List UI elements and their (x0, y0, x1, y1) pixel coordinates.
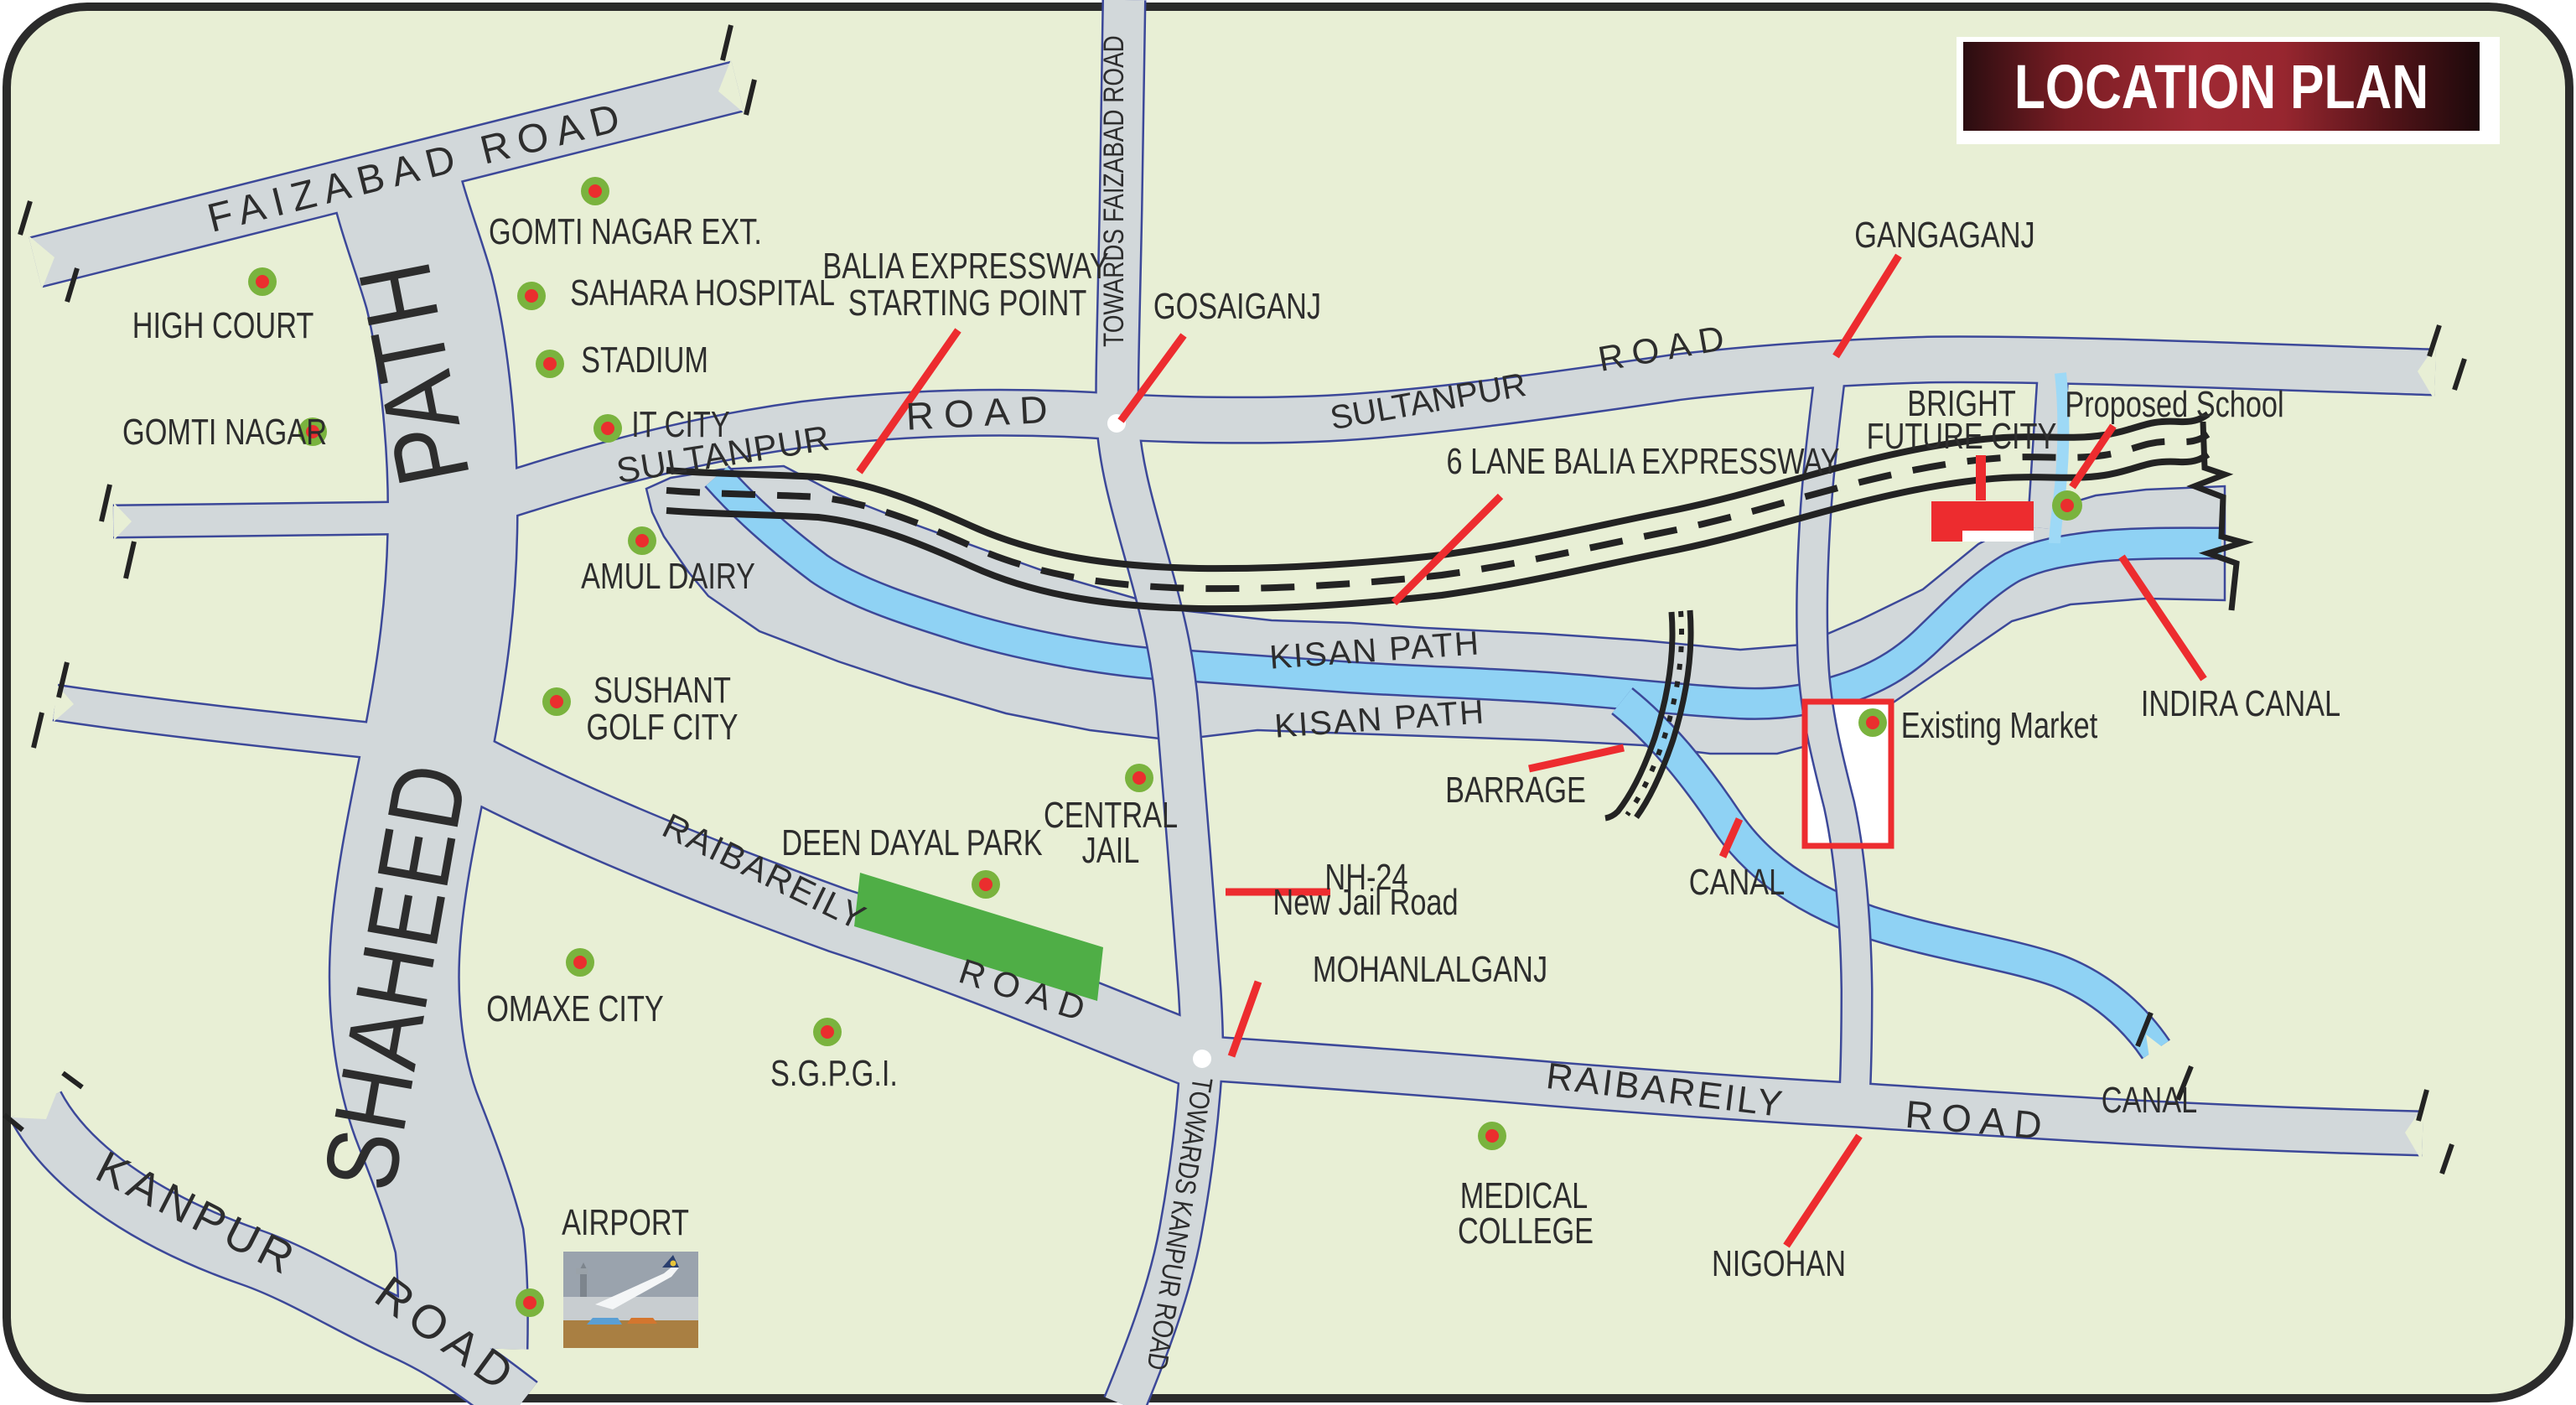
svg-text:CANAL: CANAL (2102, 1080, 2197, 1121)
svg-text:AMUL DAIRY: AMUL DAIRY (581, 556, 755, 597)
svg-text:SAHARA HOSPITAL: SAHARA HOSPITAL (570, 272, 835, 314)
svg-text:Proposed School: Proposed School (2065, 384, 2283, 425)
svg-text:FUTURE CITY: FUTURE CITY (1867, 416, 2057, 457)
svg-text:CANAL: CANAL (1689, 862, 1785, 903)
svg-text:NIGOHAN: NIGOHAN (1712, 1243, 1846, 1284)
svg-text:New Jail Road: New Jail Road (1272, 882, 1458, 923)
svg-text:Existing Market: Existing Market (1901, 705, 2098, 746)
svg-text:JAIL: JAIL (1082, 830, 1140, 871)
svg-text:LOCATION PLAN: LOCATION PLAN (2014, 53, 2428, 122)
svg-text:OMAXE CITY: OMAXE CITY (486, 988, 664, 1029)
svg-text:HIGH COURT: HIGH COURT (132, 305, 314, 346)
svg-text:TOWARDS FAIZABAD ROAD: TOWARDS FAIZABAD ROAD (1097, 35, 1129, 347)
svg-text:GOLF CITY: GOLF CITY (586, 707, 738, 748)
svg-text:STADIUM: STADIUM (581, 340, 708, 381)
svg-text:GANGAGANJ: GANGAGANJ (1854, 215, 2034, 256)
svg-text:GOSAIGANJ: GOSAIGANJ (1153, 286, 1321, 327)
svg-text:6 LANE BALIA EXPRESSWAY: 6 LANE BALIA EXPRESSWAY (1447, 441, 1840, 482)
svg-text:MOHANLALGANJ: MOHANLALGANJ (1313, 949, 1547, 990)
svg-text:S.G.P.G.I.: S.G.P.G.I. (770, 1053, 898, 1094)
svg-text:COLLEGE: COLLEGE (1458, 1211, 1594, 1252)
svg-text:GOMTI NAGAR: GOMTI NAGAR (122, 412, 327, 453)
svg-text:BARRAGE: BARRAGE (1445, 770, 1586, 811)
svg-text:STARTING POINT: STARTING POINT (848, 283, 1087, 324)
svg-text:BALIA EXPRESSWAY: BALIA EXPRESSWAY (822, 246, 1108, 287)
svg-text:GOMTI NAGAR EXT.: GOMTI NAGAR EXT. (489, 211, 762, 252)
svg-text:DEEN DAYAL PARK: DEEN DAYAL PARK (781, 822, 1042, 863)
svg-text:SUSHANT: SUSHANT (593, 670, 731, 711)
svg-text:AIRPORT: AIRPORT (562, 1202, 689, 1243)
svg-text:ROAD: ROAD (904, 386, 1058, 438)
svg-text:INDIRA CANAL: INDIRA CANAL (2141, 683, 2340, 724)
